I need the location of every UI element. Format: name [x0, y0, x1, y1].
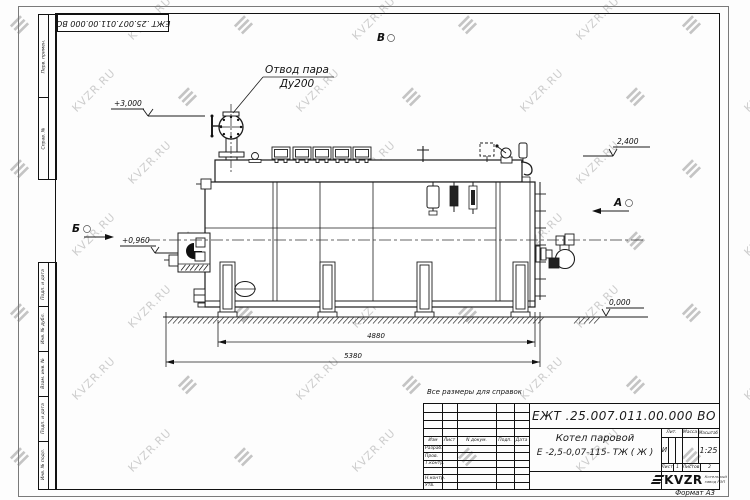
row-checked: Пров.	[424, 452, 458, 460]
divider-line	[514, 404, 515, 489]
title-block: Изм Лист N докум. Подп. Дата Разраб. Про…	[423, 403, 720, 490]
steam-outlet-valve	[211, 112, 245, 160]
divider-line	[661, 463, 719, 464]
scale-value: 1:25	[698, 437, 719, 463]
divider-line	[424, 420, 529, 421]
elevation-0000: 0,000	[609, 298, 631, 307]
scale-label: Масштаб	[698, 428, 719, 437]
divider-line	[424, 460, 529, 461]
divider-line	[529, 404, 530, 489]
row-developed: Разраб.	[424, 445, 458, 452]
divider-line	[698, 428, 699, 463]
divider-line	[496, 404, 497, 489]
doc-number: ЕЖТ .25.007.011.00.000 ВО	[529, 404, 719, 428]
divider-line	[673, 463, 674, 471]
kvzr-logo-text: KVZR	[664, 473, 703, 487]
elevation-2400: 2,400	[617, 137, 639, 146]
divider-line	[424, 482, 529, 483]
steam-outlet-label: Отвод пара	[265, 64, 329, 76]
divider-line	[424, 445, 529, 446]
col-izm: Изм	[424, 436, 442, 445]
divider-line	[668, 437, 669, 463]
kvzr-logo: KVZR Котельный завод РЭП	[661, 471, 719, 489]
row-ncontrol: Н.контр.	[424, 474, 458, 482]
dimension-4880: 4880	[367, 332, 385, 340]
format-label: Формат А3	[655, 489, 735, 497]
sheet-value: 1	[673, 463, 682, 471]
divider-line	[424, 452, 529, 453]
view-letter-b: Б	[72, 223, 80, 235]
col-doc: N докум.	[457, 436, 496, 445]
divider-line	[682, 428, 683, 471]
divider-line	[700, 463, 701, 471]
col-sign: Подп.	[496, 436, 514, 445]
manhole	[234, 282, 256, 297]
row-approved: Утв.	[424, 482, 458, 489]
kvzr-logo-subtitle-line2: завод РЭП	[705, 480, 727, 485]
kvzr-logo-bars-icon	[650, 474, 665, 486]
divider-line	[424, 412, 529, 413]
lit-value: И	[661, 437, 668, 463]
view-letter-a: А	[613, 197, 622, 209]
drawing-sheet: ≡KVZR.RU≡KVZR.RU≡KVZR.RU≡KVZR.RU≡KVZR.RU…	[0, 0, 750, 500]
kvzr-logo-subtitle: Котельный завод РЭП	[705, 475, 727, 484]
lit-label: Лит.	[661, 428, 682, 437]
elevation-3000: +3,000	[114, 99, 142, 108]
sheets-value: 2	[700, 463, 719, 471]
col-date: Дата	[514, 436, 529, 445]
dimension-5380: 5380	[344, 352, 362, 360]
elevation-0960: +0,960	[122, 236, 150, 245]
divider-line	[529, 471, 719, 472]
product-name-line1: Котел паровой	[529, 430, 661, 446]
divider-line	[424, 474, 529, 475]
divider-line	[424, 436, 529, 437]
reference-note: Все размеры для справок	[427, 388, 522, 396]
col-list: Лист	[442, 436, 457, 445]
sheets-label: Листов	[682, 463, 700, 471]
divider-line	[661, 437, 719, 438]
divider-line	[675, 437, 676, 463]
view-letter-v: В	[377, 32, 385, 44]
mass-label: Масса	[682, 428, 698, 437]
steam-outlet-size-label: Ду200	[279, 78, 315, 90]
divider-line	[424, 467, 529, 468]
sheet-label: Лист	[661, 463, 673, 471]
product-name-line2: Е -2,5-0,07-115- ТЖ ( Ж )	[529, 446, 661, 460]
divider-line	[442, 404, 443, 489]
divider-line	[457, 404, 458, 489]
boiler-body	[205, 160, 535, 307]
feed-pump-assembly	[536, 234, 575, 269]
row-tcontrol: Т.контр.	[424, 460, 458, 467]
divider-line	[424, 428, 719, 429]
